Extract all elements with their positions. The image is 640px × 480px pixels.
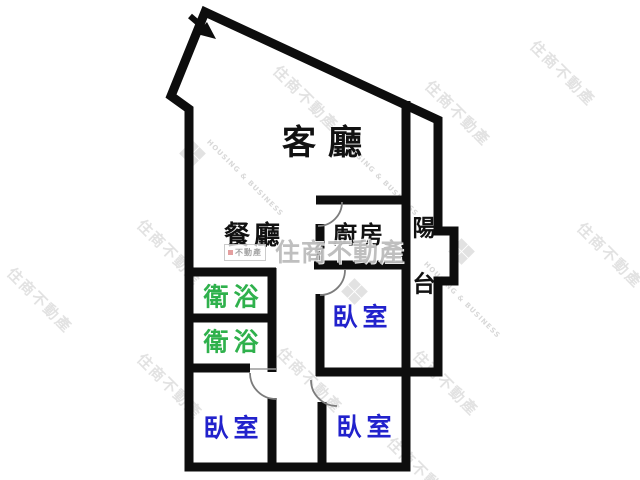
room-label-bath-upper: 衛浴 (198, 285, 263, 310)
middle-bedroom-door-arc (320, 270, 345, 295)
bottom-right-bedroom-door-arc (311, 380, 337, 406)
watermark-logo-red-icon (228, 250, 233, 255)
watermark-brand-center: 住商不動產 (273, 233, 407, 269)
room-label-living: 客廳 (270, 126, 374, 160)
watermark-logo-box: 不動產 (224, 244, 266, 261)
watermark-logo-text: 不動產 (235, 247, 262, 258)
bottom-left-bedroom-door-arc (250, 373, 276, 399)
balcony-char-top: 陽 (413, 218, 436, 241)
room-label-bath-lower: 衛浴 (198, 330, 263, 355)
room-label-bedroom-middle: 臥室 (327, 305, 392, 330)
room-label-bedroom-bottom-right: 臥室 (331, 415, 396, 440)
balcony-char-bottom: 台 (413, 274, 436, 297)
room-label-bedroom-bottom-left: 臥室 (198, 416, 263, 441)
room-label-balcony: 陽 台 (413, 218, 436, 297)
floor-plan: 住商不動產 住商不動產 住商不動產 住商不動產 住商不動產 住商不動產 住商不動… (0, 0, 640, 480)
